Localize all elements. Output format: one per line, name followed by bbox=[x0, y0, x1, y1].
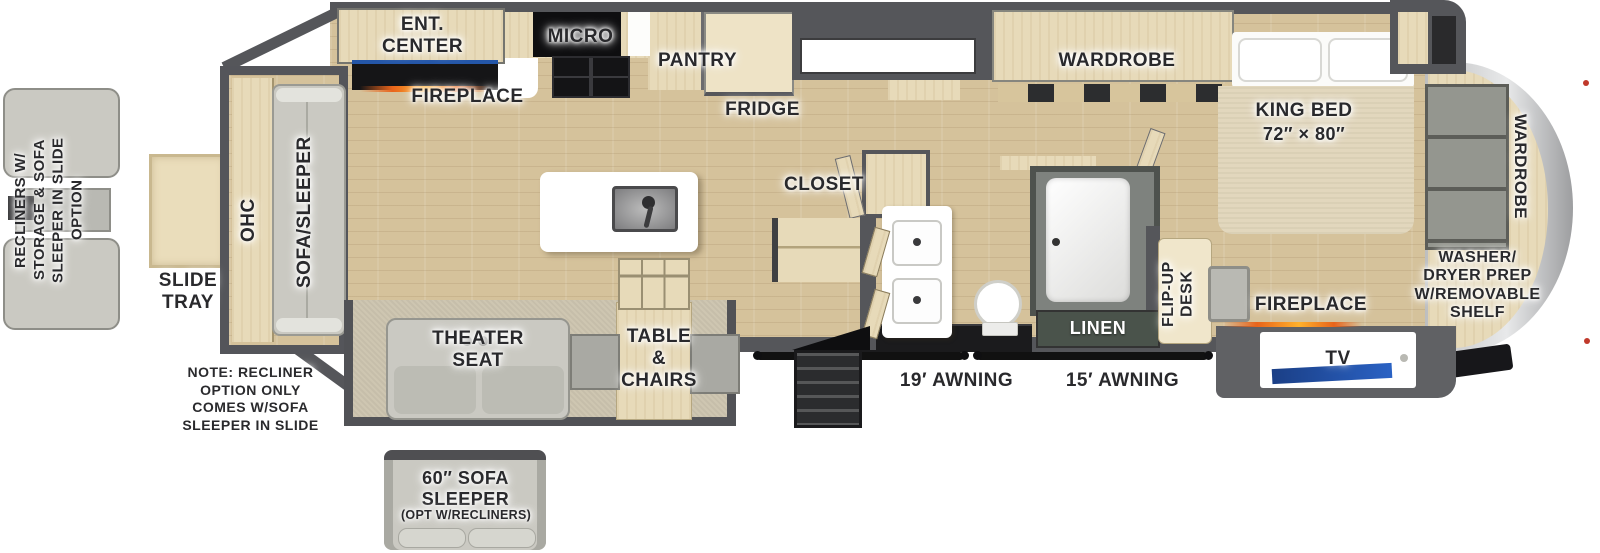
shower-handle-icon bbox=[1052, 238, 1060, 246]
table-chairs-label: TABLE & CHAIRS bbox=[600, 326, 718, 392]
fireplace-flame bbox=[1222, 322, 1362, 327]
faucet-icon bbox=[913, 238, 921, 246]
awning-rail-15 bbox=[976, 352, 1208, 360]
range-cooktop bbox=[552, 56, 630, 98]
marker-light-icon bbox=[1584, 338, 1590, 344]
king-bed-label: KING BED bbox=[1224, 100, 1384, 122]
fireplace-label: FIREPLACE bbox=[385, 86, 550, 108]
awning-end-icon bbox=[1204, 351, 1213, 360]
theater-seat-cushion bbox=[482, 366, 564, 414]
rear-top-angled-wall bbox=[222, 5, 345, 73]
tv-power-icon bbox=[1400, 354, 1408, 362]
awning-end-icon bbox=[960, 351, 969, 360]
tv-label: TV bbox=[1288, 348, 1388, 370]
king-bed-size-label: 72″ × 80″ bbox=[1224, 124, 1384, 145]
slide-tray bbox=[149, 154, 227, 268]
fridge-label: FRIDGE bbox=[705, 99, 820, 121]
front-wardrobe-shelves bbox=[1425, 84, 1509, 250]
sofa-cushion bbox=[468, 528, 536, 548]
washer-dryer-label: WASHER/ DRYER PREP W/REMOVABLE SHELF bbox=[1385, 249, 1570, 323]
theater-seat-label: THEATER SEAT bbox=[398, 328, 558, 372]
faucet-icon bbox=[913, 296, 921, 304]
linen-label: LINEN bbox=[1040, 318, 1156, 339]
nightstand bbox=[1398, 12, 1428, 64]
recliner-option-label: RECLINERS W/ STORAGE & SOFA SLEEPER IN S… bbox=[12, 105, 112, 315]
awning-19-label: 19′ AWNING bbox=[874, 370, 1039, 392]
sofa-sleeper-label: SOFA/SLEEPER bbox=[294, 95, 324, 330]
flip-up-desk-label: FLIP-UP DESK bbox=[1160, 246, 1206, 342]
wall-shelf bbox=[888, 80, 960, 100]
marker-light-icon bbox=[1583, 80, 1589, 86]
pantry-label: PANTRY bbox=[640, 50, 755, 72]
recliner-note-label: NOTE: RECLINER OPTION ONLY COMES W/SOFA … bbox=[168, 364, 333, 434]
awning-end-icon bbox=[753, 351, 762, 360]
hutch-shelf bbox=[618, 258, 690, 310]
awning-15-label: 15′ AWNING bbox=[1040, 370, 1205, 392]
pillow bbox=[1238, 38, 1322, 82]
ent-center-label: ENT. CENTER bbox=[350, 14, 495, 58]
sofa-cushion bbox=[398, 528, 466, 548]
micro-label: MICRO bbox=[538, 26, 623, 48]
sofa-option-sub-label: (OPT W/RECLINERS) bbox=[386, 508, 546, 522]
slide-tray-label: SLIDE TRAY bbox=[128, 270, 248, 314]
bath-shelf-unit bbox=[772, 218, 872, 282]
toilet-tank bbox=[982, 322, 1018, 336]
toilet bbox=[974, 280, 1022, 328]
awning-end-icon bbox=[973, 351, 982, 360]
bedroom-cabinet bbox=[1432, 16, 1456, 64]
sofa-option-label: 60″ SOFA SLEEPER bbox=[398, 468, 533, 509]
ohc-label: OHC bbox=[238, 165, 268, 275]
bath-door-panel bbox=[800, 38, 976, 74]
theater-seat-cushion bbox=[394, 366, 476, 414]
rv-floorplan: ENT. CENTER FIREPLACE MICRO PANTRY FRIDG… bbox=[0, 0, 1600, 553]
closet-label: CLOSET bbox=[768, 174, 880, 196]
wardrobe-slide-label: WARDROBE bbox=[1017, 50, 1217, 72]
entry-steps bbox=[794, 350, 862, 428]
bedroom-fireplace-label: FIREPLACE bbox=[1236, 294, 1386, 316]
wardrobe-slide-base bbox=[998, 84, 1228, 102]
front-wardrobe-label: WARDROBE bbox=[1500, 92, 1530, 242]
